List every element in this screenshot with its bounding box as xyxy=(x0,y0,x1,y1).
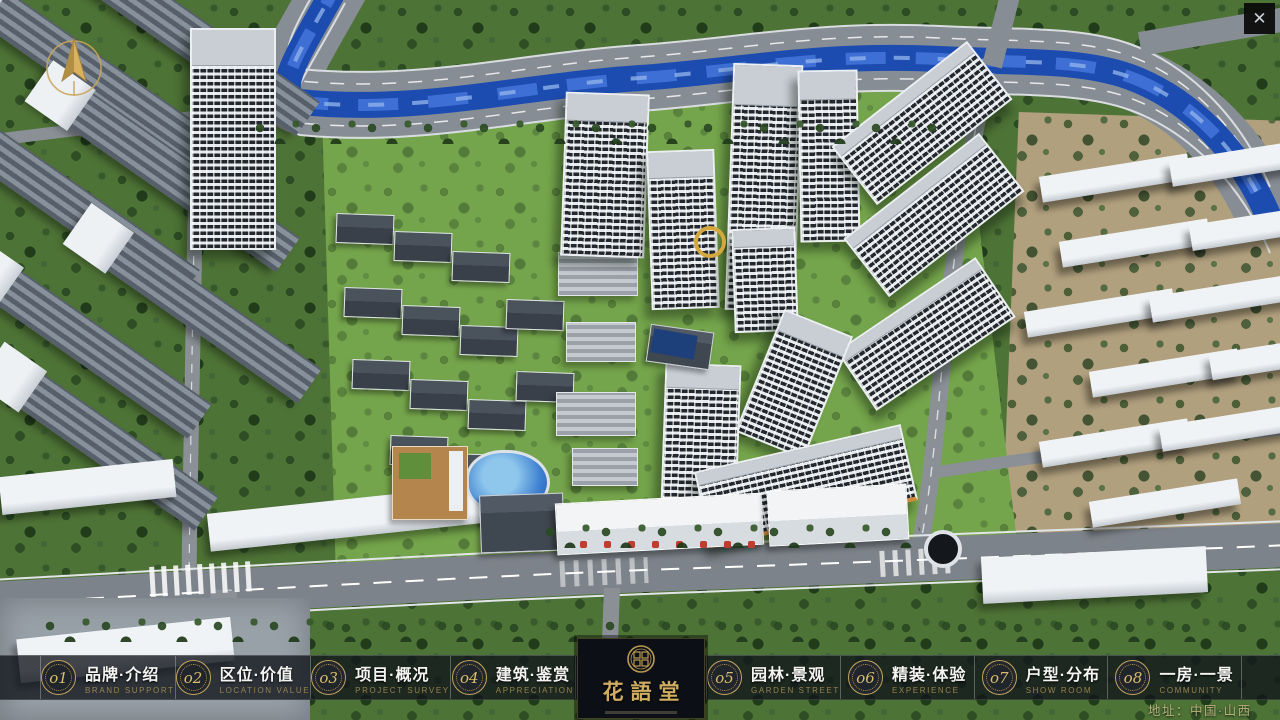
brand-subtext xyxy=(605,711,677,714)
nav-number: o1 xyxy=(49,669,68,687)
project-address: 地址：中国·山西 xyxy=(1148,700,1252,719)
nav-label-zh: 户型·分布 xyxy=(1026,661,1100,685)
nav-label-zh: 园林·景观 xyxy=(751,661,825,685)
nav-item-room-view[interactable]: o8 一房·一景COMMUNITY xyxy=(1107,656,1242,699)
nav-item-brand-intro[interactable]: o1 品牌·介绍BRAND SUPPORT xyxy=(40,656,175,699)
midrise-block xyxy=(572,448,638,486)
gold-landscape-feature xyxy=(694,226,726,258)
nav-number-badge: o6 xyxy=(848,660,883,695)
midrise-block xyxy=(566,322,636,362)
courtyard-house xyxy=(351,359,410,391)
nav-item-location-value[interactable]: o2 区位·价值LOCATION VALUE xyxy=(175,656,311,699)
nav-item-project-overview[interactable]: o3 项目·概况PROJECT SURVEY xyxy=(310,656,450,699)
nav-number: o5 xyxy=(715,669,734,687)
courtyard-house xyxy=(343,287,402,319)
nav-group-left: o1 品牌·介绍BRAND SUPPORT o2 区位·价值LOCATION V… xyxy=(40,656,576,699)
nav-number-badge: o5 xyxy=(707,660,742,695)
nav-number: o2 xyxy=(184,669,203,687)
compass-north-icon xyxy=(40,34,108,102)
courtyard-house xyxy=(401,305,460,337)
courtyard-house xyxy=(459,325,518,357)
nav-label-en: APPRECIATION xyxy=(496,686,574,695)
nav-number: o4 xyxy=(460,669,479,687)
nav-label-en: SHOW ROOM xyxy=(1026,686,1092,695)
nav-number: o6 xyxy=(856,669,875,687)
nav-number-badge: o1 xyxy=(41,660,76,695)
nav-label-zh: 精装·体验 xyxy=(892,661,966,685)
nav-item-garden-landscape[interactable]: o5 园林·景观GARDEN STREET xyxy=(706,656,840,699)
nav-label-en: PROJECT SURVEY xyxy=(355,686,450,695)
nav-label-zh: 建筑·鉴赏 xyxy=(496,661,570,685)
courtyard-house xyxy=(505,299,564,331)
courtyard-house xyxy=(467,399,526,431)
nav-number-badge: o3 xyxy=(311,660,346,695)
nav-label-en: GARDEN STREET xyxy=(751,686,840,695)
nav-number: o3 xyxy=(319,669,338,687)
nav-group-right: o5 园林·景观GARDEN STREET o6 精装·体验EXPERIENCE… xyxy=(706,656,1242,699)
nav-label-en: LOCATION VALUE xyxy=(220,686,311,695)
riverside-trees xyxy=(250,116,950,144)
courtyard-house xyxy=(393,231,452,263)
entry-plaza-feature xyxy=(924,530,962,568)
nav-label-en: COMMUNITY xyxy=(1159,686,1223,695)
courtyard-house xyxy=(451,251,510,283)
courtyard-house xyxy=(409,379,468,411)
sales-presentation-screen: ✕ o1 品牌·介绍BRAND SUPPORT o2 区位·价值LOCATION… xyxy=(0,0,1280,720)
nav-number-badge: o4 xyxy=(452,660,487,695)
nav-label-zh: 区位·价值 xyxy=(220,661,294,685)
close-icon[interactable]: ✕ xyxy=(1244,3,1275,34)
nav-number: o8 xyxy=(1124,669,1143,687)
nav-item-floorplan-distribution[interactable]: o7 户型·分布SHOW ROOM xyxy=(974,656,1108,699)
nav-item-decor-experience[interactable]: o6 精装·体验EXPERIENCE xyxy=(840,656,974,699)
nav-number-badge: o7 xyxy=(982,660,1017,695)
nav-number-badge: o2 xyxy=(176,660,211,695)
nav-label-zh: 项目·概况 xyxy=(355,661,429,685)
nav-item-architecture-appreciation[interactable]: o4 建筑·鉴赏APPRECIATION xyxy=(450,656,576,699)
brand-logo-panel[interactable]: 花語堂 xyxy=(577,638,705,719)
brand-name: 花語堂 xyxy=(596,676,687,706)
courtyard-house xyxy=(335,213,394,245)
nav-label-en: BRAND SUPPORT xyxy=(85,686,175,695)
nav-label-zh: 品牌·介绍 xyxy=(85,661,159,685)
nav-label-en: EXPERIENCE xyxy=(892,686,960,695)
midrise-block xyxy=(556,392,636,436)
kindergarten-building xyxy=(392,446,468,520)
nav-number-badge: o8 xyxy=(1115,660,1150,695)
nav-label-zh: 一房·一景 xyxy=(1159,661,1233,685)
brand-seal-icon xyxy=(626,644,656,674)
nav-number: o7 xyxy=(990,669,1009,687)
site-plan-map[interactable] xyxy=(0,0,1280,720)
midrise-block xyxy=(558,252,638,296)
street-trees xyxy=(540,520,920,548)
